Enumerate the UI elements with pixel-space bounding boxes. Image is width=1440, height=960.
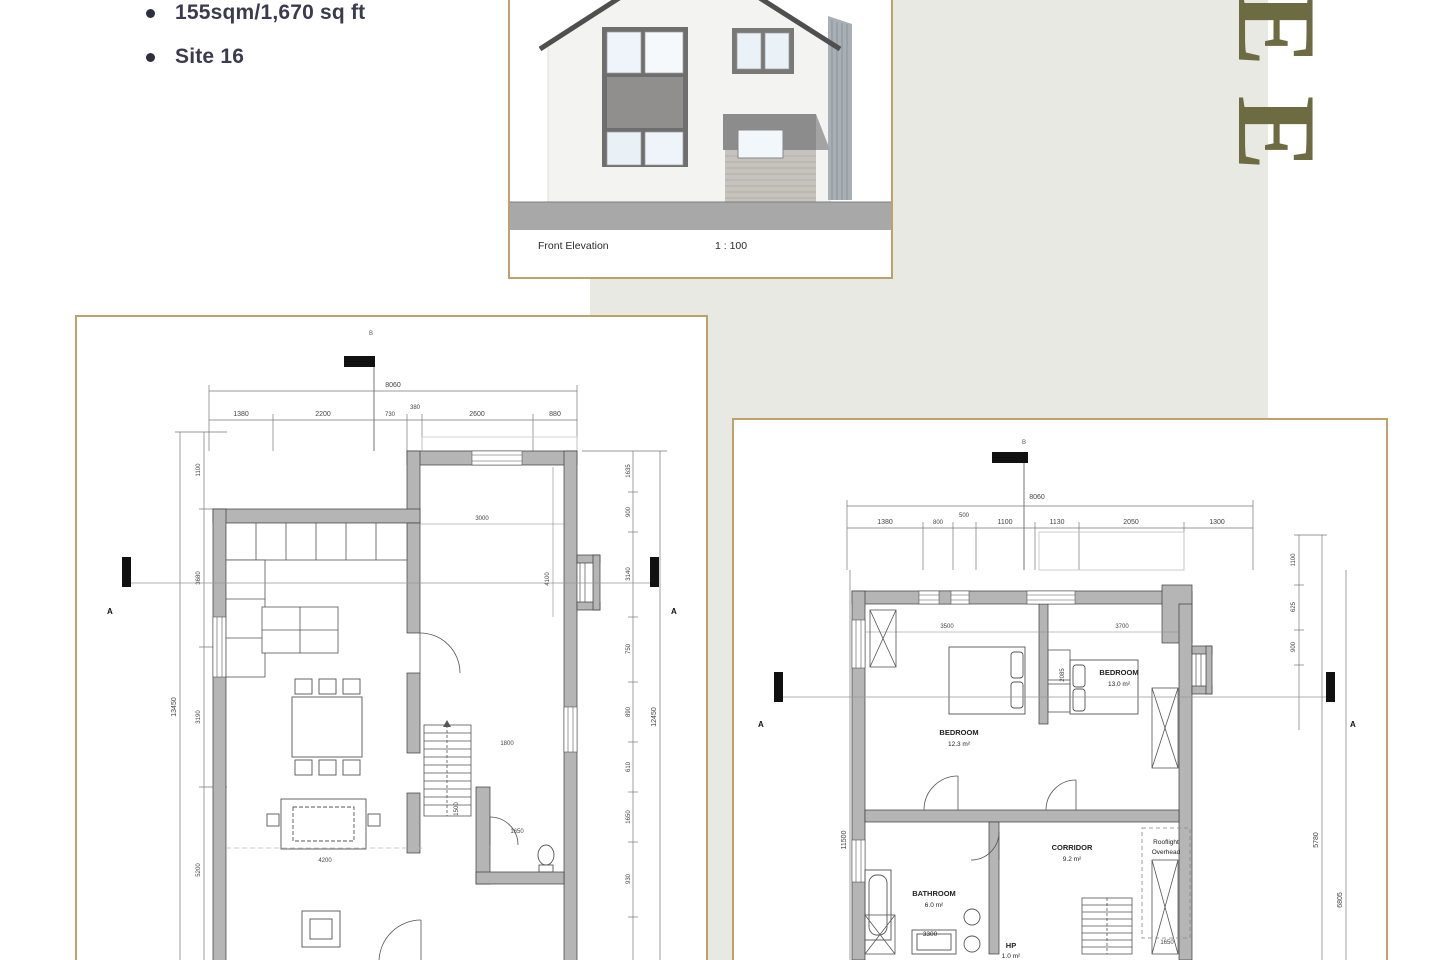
dim-label: 1100 [997, 519, 1012, 526]
dim-label: 2200 [315, 411, 331, 418]
dim-label: 800 [933, 520, 944, 526]
dim-label: 900 [1291, 641, 1297, 652]
dim-label: 3190 [196, 710, 202, 724]
elevation-scale: 1 : 100 [715, 240, 747, 252]
dimension-lines [847, 500, 1253, 570]
front-elevation-frame: Front Elevation 1 : 100 [508, 0, 893, 279]
dim-label: 730 [385, 412, 396, 418]
section-label: A [1350, 720, 1356, 729]
stairs [424, 720, 471, 816]
front-elevation-drawing: Front Elevation 1 : 100 [510, 0, 891, 277]
section-marker-bar [650, 557, 659, 587]
section-label: A [107, 607, 113, 616]
section-marker-bar [344, 356, 375, 367]
dim-label: 1100 [1291, 553, 1297, 567]
dim-label: 500 [959, 513, 970, 519]
brochure-page: 155sqm/1,670 sq ft Site 16 E E [0, 0, 1440, 960]
coffee-table [267, 799, 380, 849]
dim-label: 900 [626, 506, 632, 517]
dim-label: 610 [626, 761, 632, 772]
dim-label: 3680 [196, 571, 202, 585]
section-marker-bar [122, 557, 131, 587]
room-label: BATHROOM [912, 889, 956, 898]
dim-label: 1500 [454, 802, 460, 816]
bathroom-fixtures [865, 870, 980, 954]
section-marker-label: B [1022, 440, 1026, 446]
section-label: A [758, 720, 764, 729]
first-floor-plan-frame: B 8060 1380 800 500 1100 1130 2050 1300 [732, 418, 1388, 960]
section-marker-bar [992, 452, 1028, 463]
stairs [1082, 898, 1132, 954]
spec-bullet-site: Site 16 [146, 45, 244, 69]
section-marker-bar [1326, 672, 1335, 702]
dim-label: 5780 [1313, 832, 1320, 848]
window [213, 451, 585, 752]
dim-label: 1800 [500, 741, 514, 747]
room-area: Overhead [1152, 849, 1181, 856]
ground-strip [510, 202, 891, 230]
room-area: 12.3 m² [948, 741, 971, 748]
entrance-window [738, 130, 783, 158]
room-label: HP [1006, 941, 1016, 950]
dim-label: 880 [549, 411, 561, 418]
dim-label: 8060 [1029, 494, 1045, 501]
side-table [302, 911, 340, 947]
dim-label: 12450 [651, 707, 658, 727]
dim-label: 4100 [545, 572, 551, 586]
dim-label: 11500 [841, 830, 848, 849]
vertical-letter-e-2: E [1211, 68, 1341, 198]
room-area: 13.0 m² [1108, 681, 1131, 688]
room-label: CORRIDOR [1052, 843, 1093, 852]
spec-area-text: 155sqm/1,670 sq ft [175, 1, 365, 25]
dim-label: 2085 [1060, 668, 1066, 682]
dim-label: 1380 [233, 411, 249, 418]
dim-label: 3500 [940, 624, 954, 630]
spandrel-panel [607, 77, 683, 128]
room-label: BEDROOM [1099, 668, 1138, 677]
bullet-dot-icon [146, 53, 155, 62]
walls [852, 585, 1212, 960]
dining-table [292, 679, 362, 775]
dim-label: 1380 [877, 519, 893, 526]
spec-site-text: Site 16 [175, 45, 244, 69]
dim-label: 2600 [469, 411, 485, 418]
dim-label: 1130 [1049, 519, 1064, 526]
dim-label: 1650 [626, 810, 632, 824]
dim-label: 6805 [1337, 892, 1344, 908]
section-marker-label: B [369, 331, 373, 337]
room-area: 9.2 m² [1063, 856, 1082, 863]
dim-label: 1300 [1209, 519, 1225, 526]
dimension-lines [209, 385, 577, 451]
dim-label: 4200 [318, 858, 332, 864]
toilet [538, 845, 554, 872]
window [852, 591, 1201, 882]
first-floor-plan: B 8060 1380 800 500 1100 1130 2050 1300 [734, 420, 1386, 960]
ground-floor-plan-frame: B 8060 1380 2200 730 380 2600 880 [75, 315, 708, 960]
kitchen-counter [226, 523, 407, 677]
door-arc [379, 633, 518, 960]
dim-label: 1635 [626, 464, 632, 478]
wardrobe [865, 610, 1178, 954]
dim-label: 930 [626, 873, 632, 884]
room-area: 1.0 m² [1002, 953, 1021, 960]
section-marker-bar [774, 672, 783, 702]
dim-label: 1650 [510, 829, 524, 835]
dim-label: 3000 [475, 516, 489, 522]
dim-label: 8060 [385, 382, 401, 389]
dim-label: 13450 [171, 697, 178, 717]
elevation-caption: Front Elevation [538, 240, 609, 252]
ground-floor-plan: B 8060 1380 2200 730 380 2600 880 [77, 317, 706, 960]
dim-label: 3140 [626, 567, 632, 581]
room-area: 6.0 m² [925, 902, 944, 909]
dim-label: 2050 [1123, 519, 1139, 526]
bullet-dot-icon [146, 9, 155, 18]
dim-label: 5200 [196, 863, 202, 877]
dim-label: 625 [1291, 601, 1297, 612]
dim-label: 750 [626, 643, 632, 654]
dim-label: 1650 [1160, 940, 1174, 946]
room-label: Rooflight [1153, 839, 1179, 846]
room-label: BEDROOM [939, 728, 978, 737]
section-label: A [671, 607, 677, 616]
spec-bullet-area: 155sqm/1,670 sq ft [146, 1, 365, 25]
dim-label: 3300 [923, 931, 938, 938]
dim-label: 1100 [196, 463, 202, 477]
dim-label: 380 [410, 405, 421, 411]
dim-label: 3700 [1115, 624, 1129, 630]
dim-label: 890 [626, 706, 632, 717]
